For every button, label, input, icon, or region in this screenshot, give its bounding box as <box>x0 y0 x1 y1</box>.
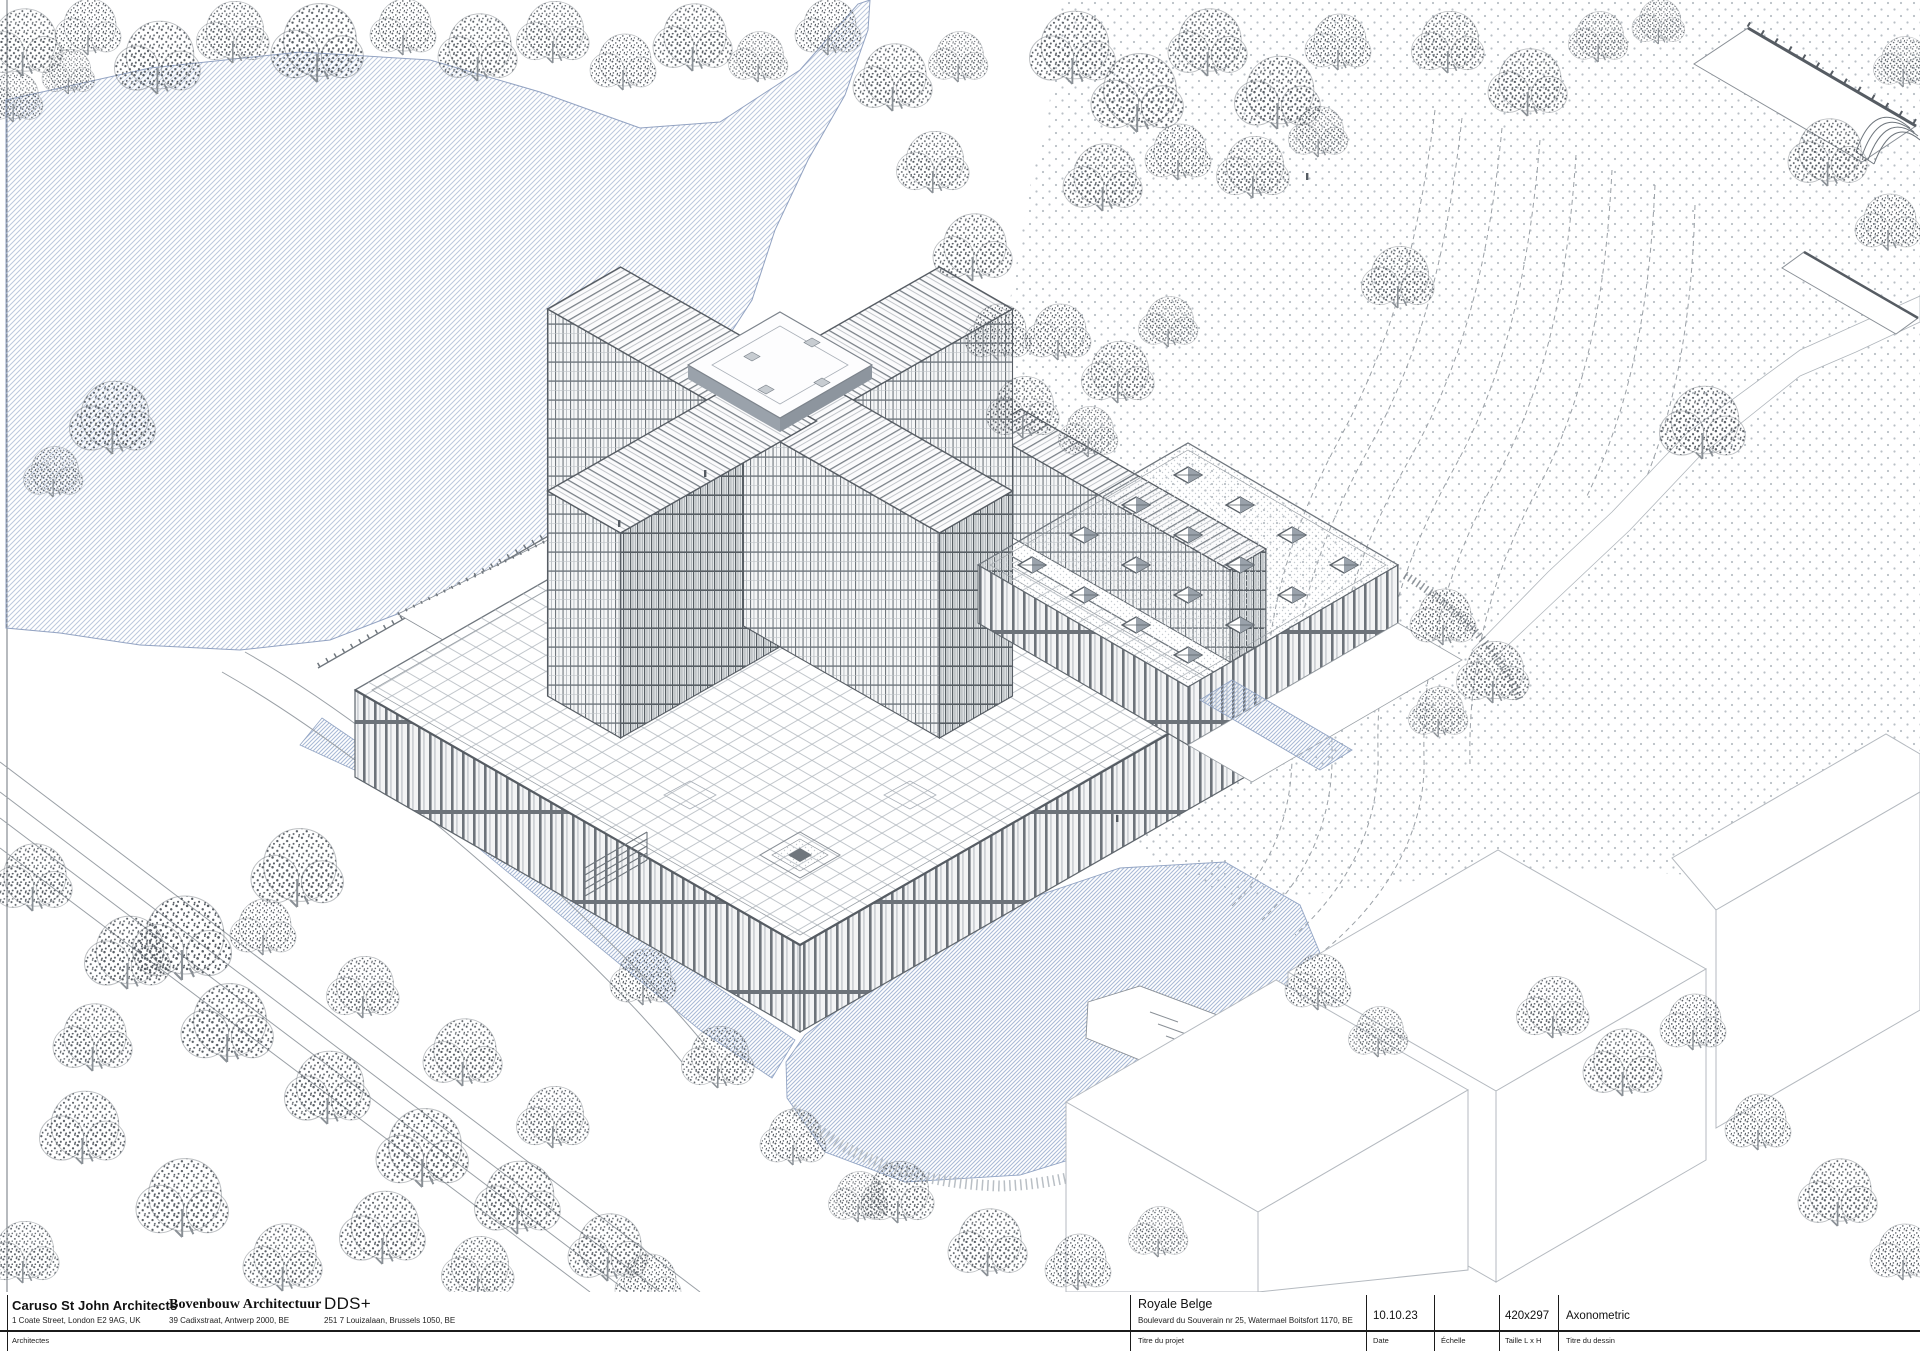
architect-2-address: 39 Cadixstraat, Antwerp 2000, BE <box>169 1316 289 1325</box>
project-name: Royale Belge <box>1138 1297 1212 1311</box>
drawing-title-label: Titre du dessin <box>1566 1336 1615 1345</box>
architects-label: Architectes <box>12 1336 49 1345</box>
title-block: Caruso St John Architects 1 Coate Street… <box>0 1292 1920 1352</box>
project-address: Boulevard du Souverain nr 25, Watermael … <box>1138 1316 1353 1325</box>
title-block-divider <box>1130 1295 1131 1351</box>
title-block-divider <box>7 1295 8 1351</box>
architect-1-address: 1 Coate Street, London E2 9AG, UK <box>12 1316 141 1325</box>
architect-2-name: Bovenbouw Architectuur <box>169 1297 321 1313</box>
title-block-divider <box>1366 1295 1367 1351</box>
title-block-divider <box>1434 1295 1435 1351</box>
date-label: Date <box>1373 1336 1389 1345</box>
architect-3-address: 251 7 Louizalaan, Brussels 1050, BE <box>324 1316 455 1325</box>
axonometric-drawing <box>0 0 1920 1292</box>
scale-label: Échelle <box>1441 1336 1466 1345</box>
architect-3-name: DDS+ <box>324 1294 371 1314</box>
architect-1-name: Caruso St John Architects <box>12 1298 177 1313</box>
project-label: Titre du projet <box>1138 1336 1184 1345</box>
title-block-divider <box>1499 1295 1500 1351</box>
date-value: 10.10.23 <box>1373 1310 1418 1322</box>
drawing-sheet: Caruso St John Architects 1 Coate Street… <box>0 0 1920 1352</box>
title-block-divider <box>1558 1295 1559 1351</box>
title-block-rule <box>0 1330 1920 1332</box>
size-label: Taille L x H <box>1505 1336 1541 1345</box>
drawing-title-value: Axonometric <box>1566 1310 1630 1322</box>
size-value: 420x297 <box>1505 1310 1549 1322</box>
tower-facade-sw-end <box>548 491 621 738</box>
